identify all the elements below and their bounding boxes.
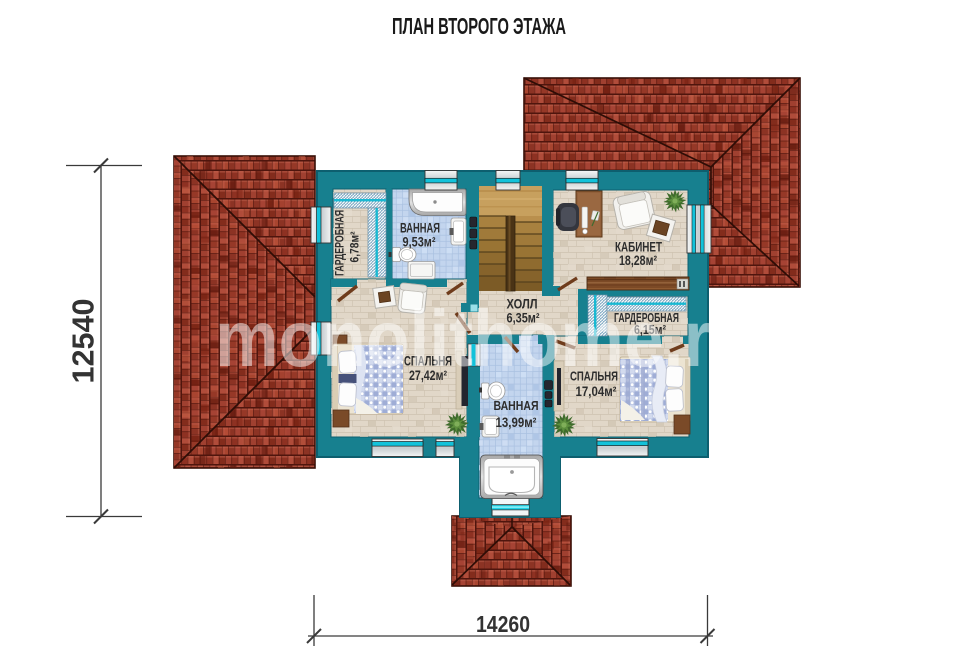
- svg-text:monolithome.ru: monolithome.ru: [215, 294, 755, 383]
- svg-text:6,78м²: 6,78м²: [350, 231, 362, 262]
- svg-text:18,28м²: 18,28м²: [619, 252, 657, 268]
- svg-text:9,53м²: 9,53м²: [403, 234, 436, 250]
- svg-text:ВАННАЯ: ВАННАЯ: [494, 399, 539, 413]
- svg-text:13,99м²: 13,99м²: [496, 415, 537, 430]
- svg-text:ПЛАН ВТОРОГО ЭТАЖА: ПЛАН ВТОРОГО ЭТАЖА: [392, 13, 566, 39]
- svg-text:12540: 12540: [66, 299, 101, 384]
- svg-text:17,04м²: 17,04м²: [576, 383, 617, 399]
- svg-text:14260: 14260: [476, 611, 530, 637]
- svg-text:ГАРДЕРОБНАЯ: ГАРДЕРОБНАЯ: [335, 210, 347, 276]
